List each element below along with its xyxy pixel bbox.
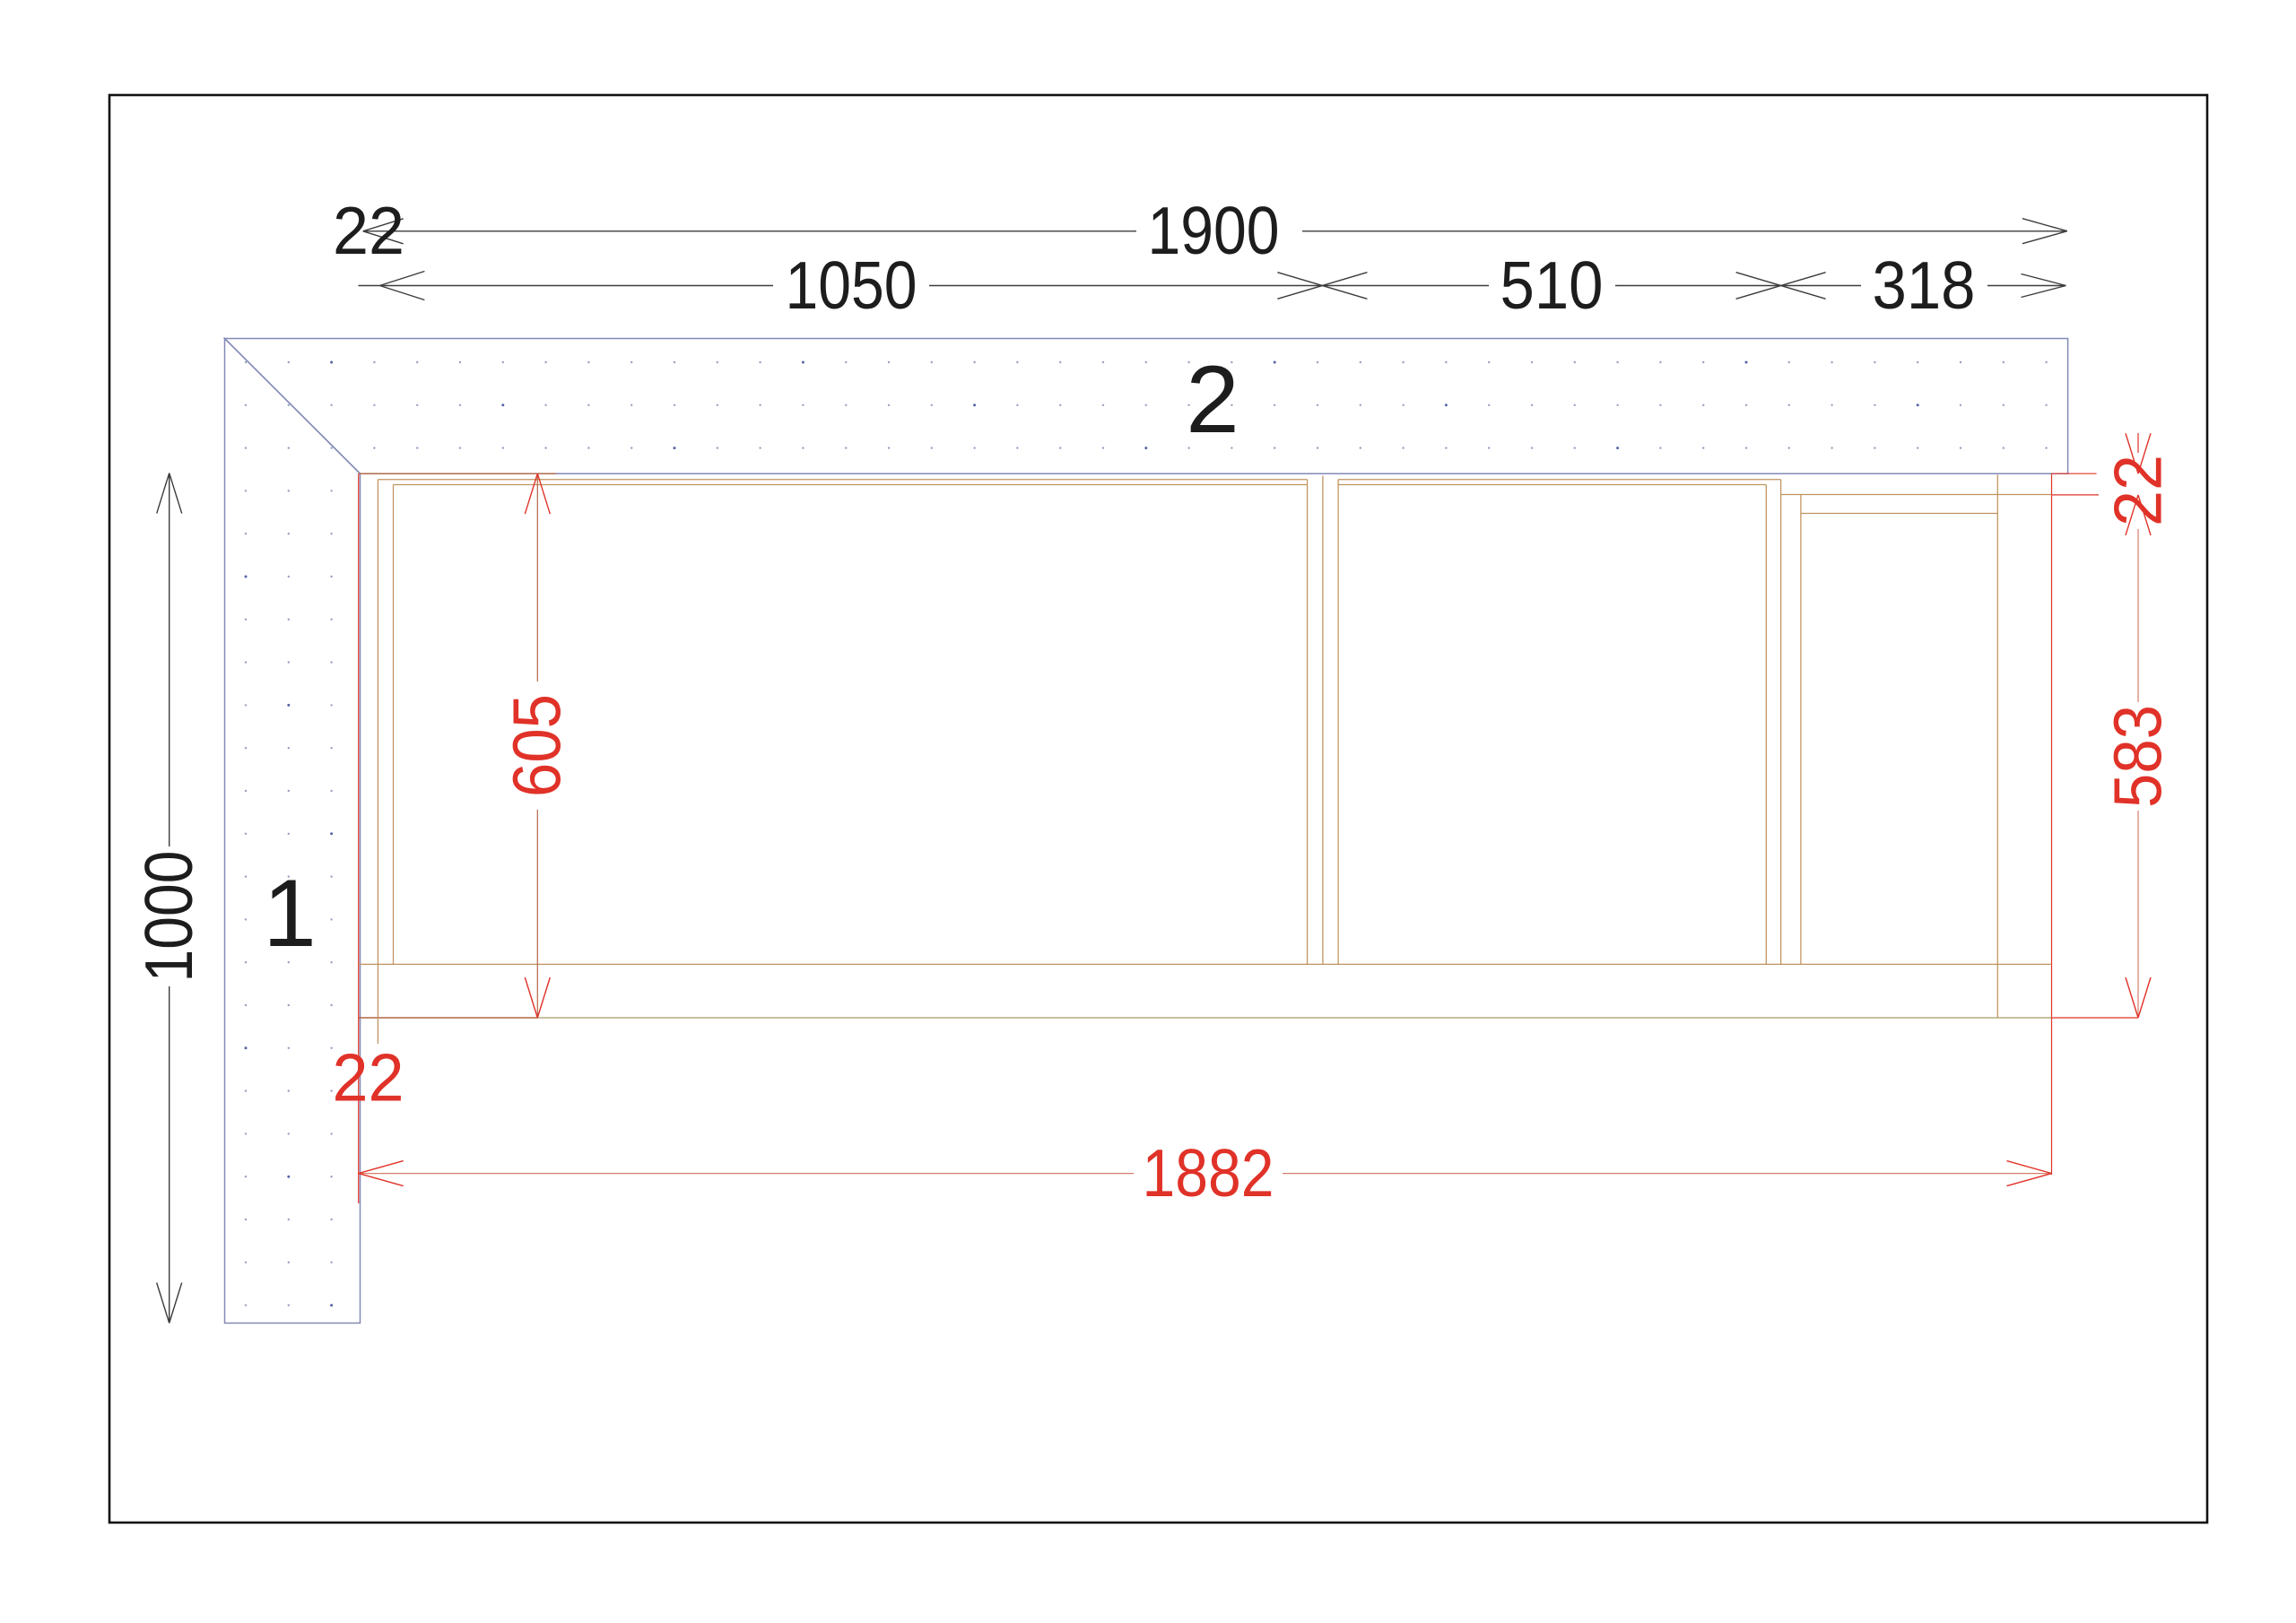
svg-text:1882: 1882 <box>1143 1135 1274 1211</box>
svg-text:510: 510 <box>1500 247 1604 323</box>
svg-text:22: 22 <box>333 193 404 268</box>
svg-text:2: 2 <box>1186 345 1239 453</box>
svg-text:318: 318 <box>1873 247 1976 323</box>
svg-text:1900: 1900 <box>1148 193 1280 268</box>
svg-text:583: 583 <box>2100 705 2175 808</box>
svg-text:22: 22 <box>2100 455 2175 526</box>
svg-text:605: 605 <box>500 694 575 797</box>
svg-text:1: 1 <box>263 859 317 967</box>
svg-text:22: 22 <box>333 1040 404 1115</box>
svg-text:1000: 1000 <box>131 851 206 983</box>
svg-text:1050: 1050 <box>786 247 918 323</box>
